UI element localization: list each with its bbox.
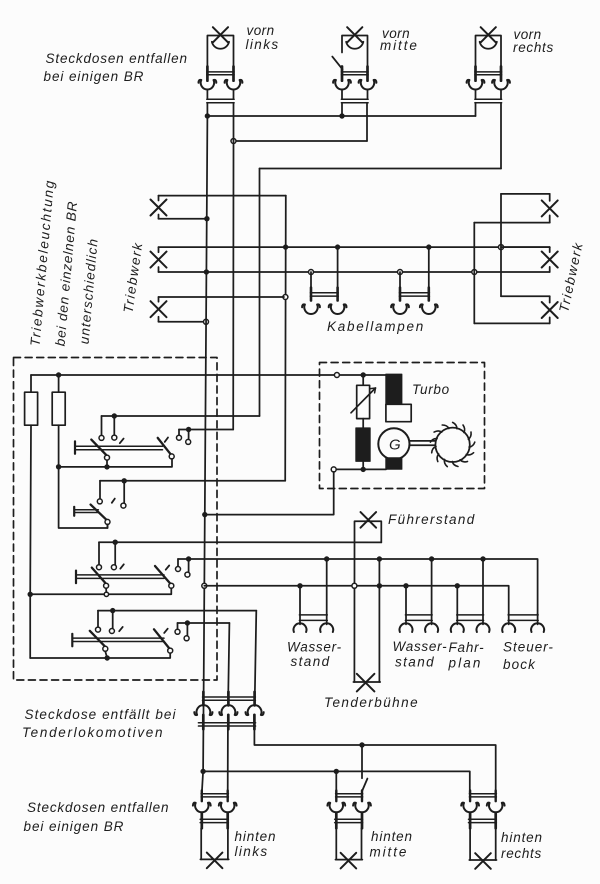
svg-text:Steckdosen entfallen: Steckdosen entfallen: [27, 800, 169, 815]
svg-text:bei einigen BR: bei einigen BR: [24, 819, 125, 834]
svg-text:bei einigen BR: bei einigen BR: [44, 69, 145, 84]
svg-text:G: G: [389, 437, 401, 454]
svg-text:rechts: rechts: [501, 846, 542, 861]
svg-text:vorn: vorn: [247, 23, 275, 38]
svg-text:rechts: rechts: [513, 40, 554, 55]
svg-text:bock: bock: [503, 657, 536, 672]
svg-text:Steckdose entfällt bei: Steckdose entfällt bei: [25, 707, 177, 722]
svg-text:stand: stand: [395, 655, 435, 670]
svg-text:hinten: hinten: [501, 830, 543, 845]
svg-text:Tenderbühne: Tenderbühne: [324, 695, 419, 710]
svg-text:hinten: hinten: [371, 829, 413, 844]
svg-text:bei den einzelnen BR: bei den einzelnen BR: [53, 200, 81, 347]
svg-text:stand: stand: [291, 654, 331, 669]
svg-text:Triebwerkbeleuchtung: Triebwerkbeleuchtung: [28, 178, 58, 346]
svg-text:links: links: [235, 844, 269, 859]
svg-text:Turbo: Turbo: [412, 382, 450, 397]
svg-text:Triebwerk: Triebwerk: [556, 240, 586, 313]
svg-text:Wasser-: Wasser-: [393, 639, 448, 654]
svg-text:plan: plan: [448, 656, 483, 671]
svg-text:hinten: hinten: [235, 829, 277, 844]
svg-text:Triebwerk: Triebwerk: [121, 241, 146, 314]
svg-text:mitte: mitte: [380, 38, 419, 53]
svg-text:Tenderlokomotiven: Tenderlokomotiven: [22, 725, 164, 740]
svg-text:mitte: mitte: [370, 845, 409, 860]
svg-text:Steuer-: Steuer-: [503, 640, 554, 655]
svg-text:Wasser-: Wasser-: [287, 640, 342, 655]
svg-text:Fahr-: Fahr-: [449, 640, 485, 655]
svg-text:Steckdosen entfallen: Steckdosen entfallen: [46, 51, 188, 66]
svg-text:Führerstand: Führerstand: [388, 512, 476, 527]
svg-text:Kabellampen: Kabellampen: [327, 319, 425, 334]
svg-text:links: links: [246, 37, 280, 52]
svg-text:unterschiedlich: unterschiedlich: [77, 237, 101, 344]
